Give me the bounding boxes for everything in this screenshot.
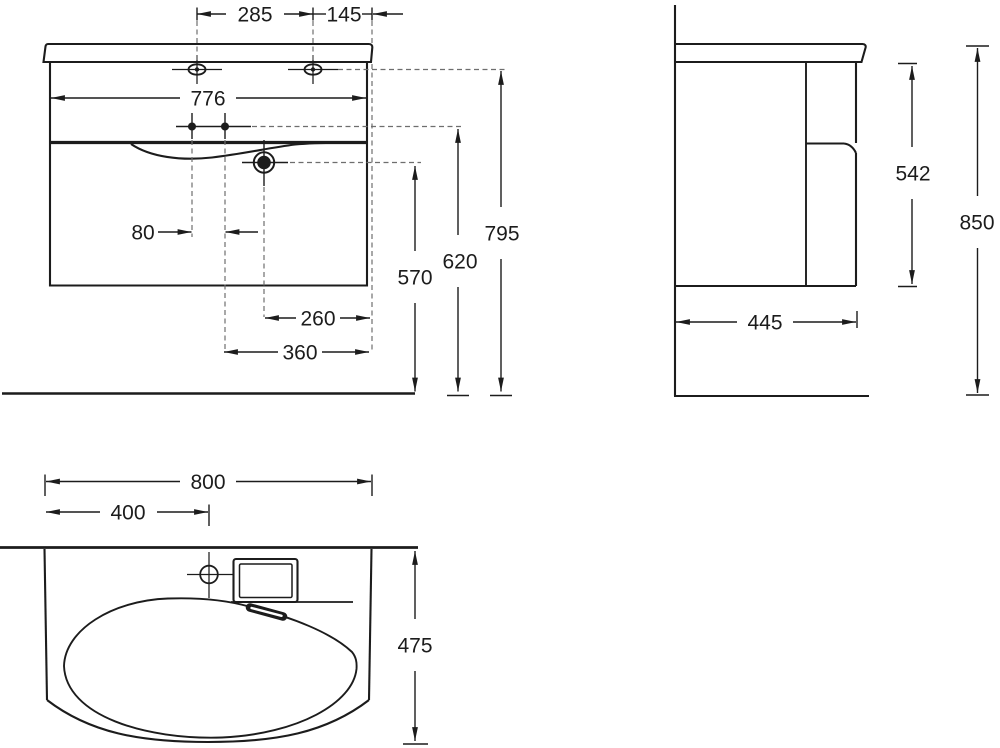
dim-260-drain-offset: 260 (265, 308, 370, 331)
dim-445-depth: 445 (676, 311, 857, 335)
dim-400-faucet-offset: 400 (46, 502, 209, 527)
dim-label-260: 260 (300, 308, 335, 331)
dim-795-top-height: 795 (484, 71, 519, 396)
plan-front-curve (47, 700, 369, 742)
dim-620-mount-height: 620 (442, 129, 477, 396)
technical-drawing-page: 285 145 776 80 260 (0, 0, 1000, 748)
dim-label-475: 475 (397, 635, 432, 658)
side-countertop (675, 44, 866, 62)
plan-overflow-slot (250, 608, 283, 617)
dim-label-620: 620 (442, 251, 477, 274)
plan-basin-bowl (64, 598, 357, 737)
vanity-dimension-drawing: 285 145 776 80 260 (0, 0, 1000, 748)
dim-label-850: 850 (959, 212, 994, 235)
plan-left-edge (45, 549, 48, 700)
side-view: 542 445 850 (674, 5, 995, 396)
dim-80-mount-spacing: 80 (131, 222, 258, 245)
dim-label-445: 445 (747, 312, 782, 335)
dim-475-basin-depth: 475 (397, 551, 432, 744)
dim-label-400: 400 (110, 502, 145, 525)
mounting-points (176, 113, 251, 139)
plan-overflow-box (234, 559, 298, 602)
dim-label-570: 570 (397, 267, 432, 290)
dim-label-360: 360 (282, 342, 317, 365)
side-drawer-chamfer (844, 144, 856, 154)
dim-label-145: 145 (326, 4, 361, 27)
dim-542-under-top-height: 542 (895, 64, 930, 287)
dim-776-cabinet-width: 776 (51, 88, 366, 111)
dim-label-80: 80 (131, 222, 154, 245)
front-basin-curve (131, 143, 356, 159)
dim-360-mount-offset: 360 (224, 342, 369, 365)
dim-850-total-height: 850 (959, 46, 994, 395)
plan-view: 800 400 475 (0, 471, 433, 744)
dim-800-basin-width: 800 (45, 471, 372, 496)
front-view: 285 145 776 80 260 (2, 4, 520, 396)
dim-label-776: 776 (190, 88, 225, 111)
plan-right-edge (369, 549, 372, 700)
front-countertop (44, 44, 373, 62)
plan-faucet-hole (187, 552, 233, 598)
dim-145-hole-to-edge: 145 (313, 4, 403, 27)
dim-label-285: 285 (237, 4, 272, 27)
construction-lines-front (192, 21, 507, 352)
dim-label-542: 542 (895, 163, 930, 186)
dim-label-800: 800 (190, 471, 225, 494)
dim-570-drain-height: 570 (397, 166, 432, 392)
dim-label-795: 795 (484, 223, 519, 246)
dim-285-hole-spacing: 285 (197, 4, 313, 27)
